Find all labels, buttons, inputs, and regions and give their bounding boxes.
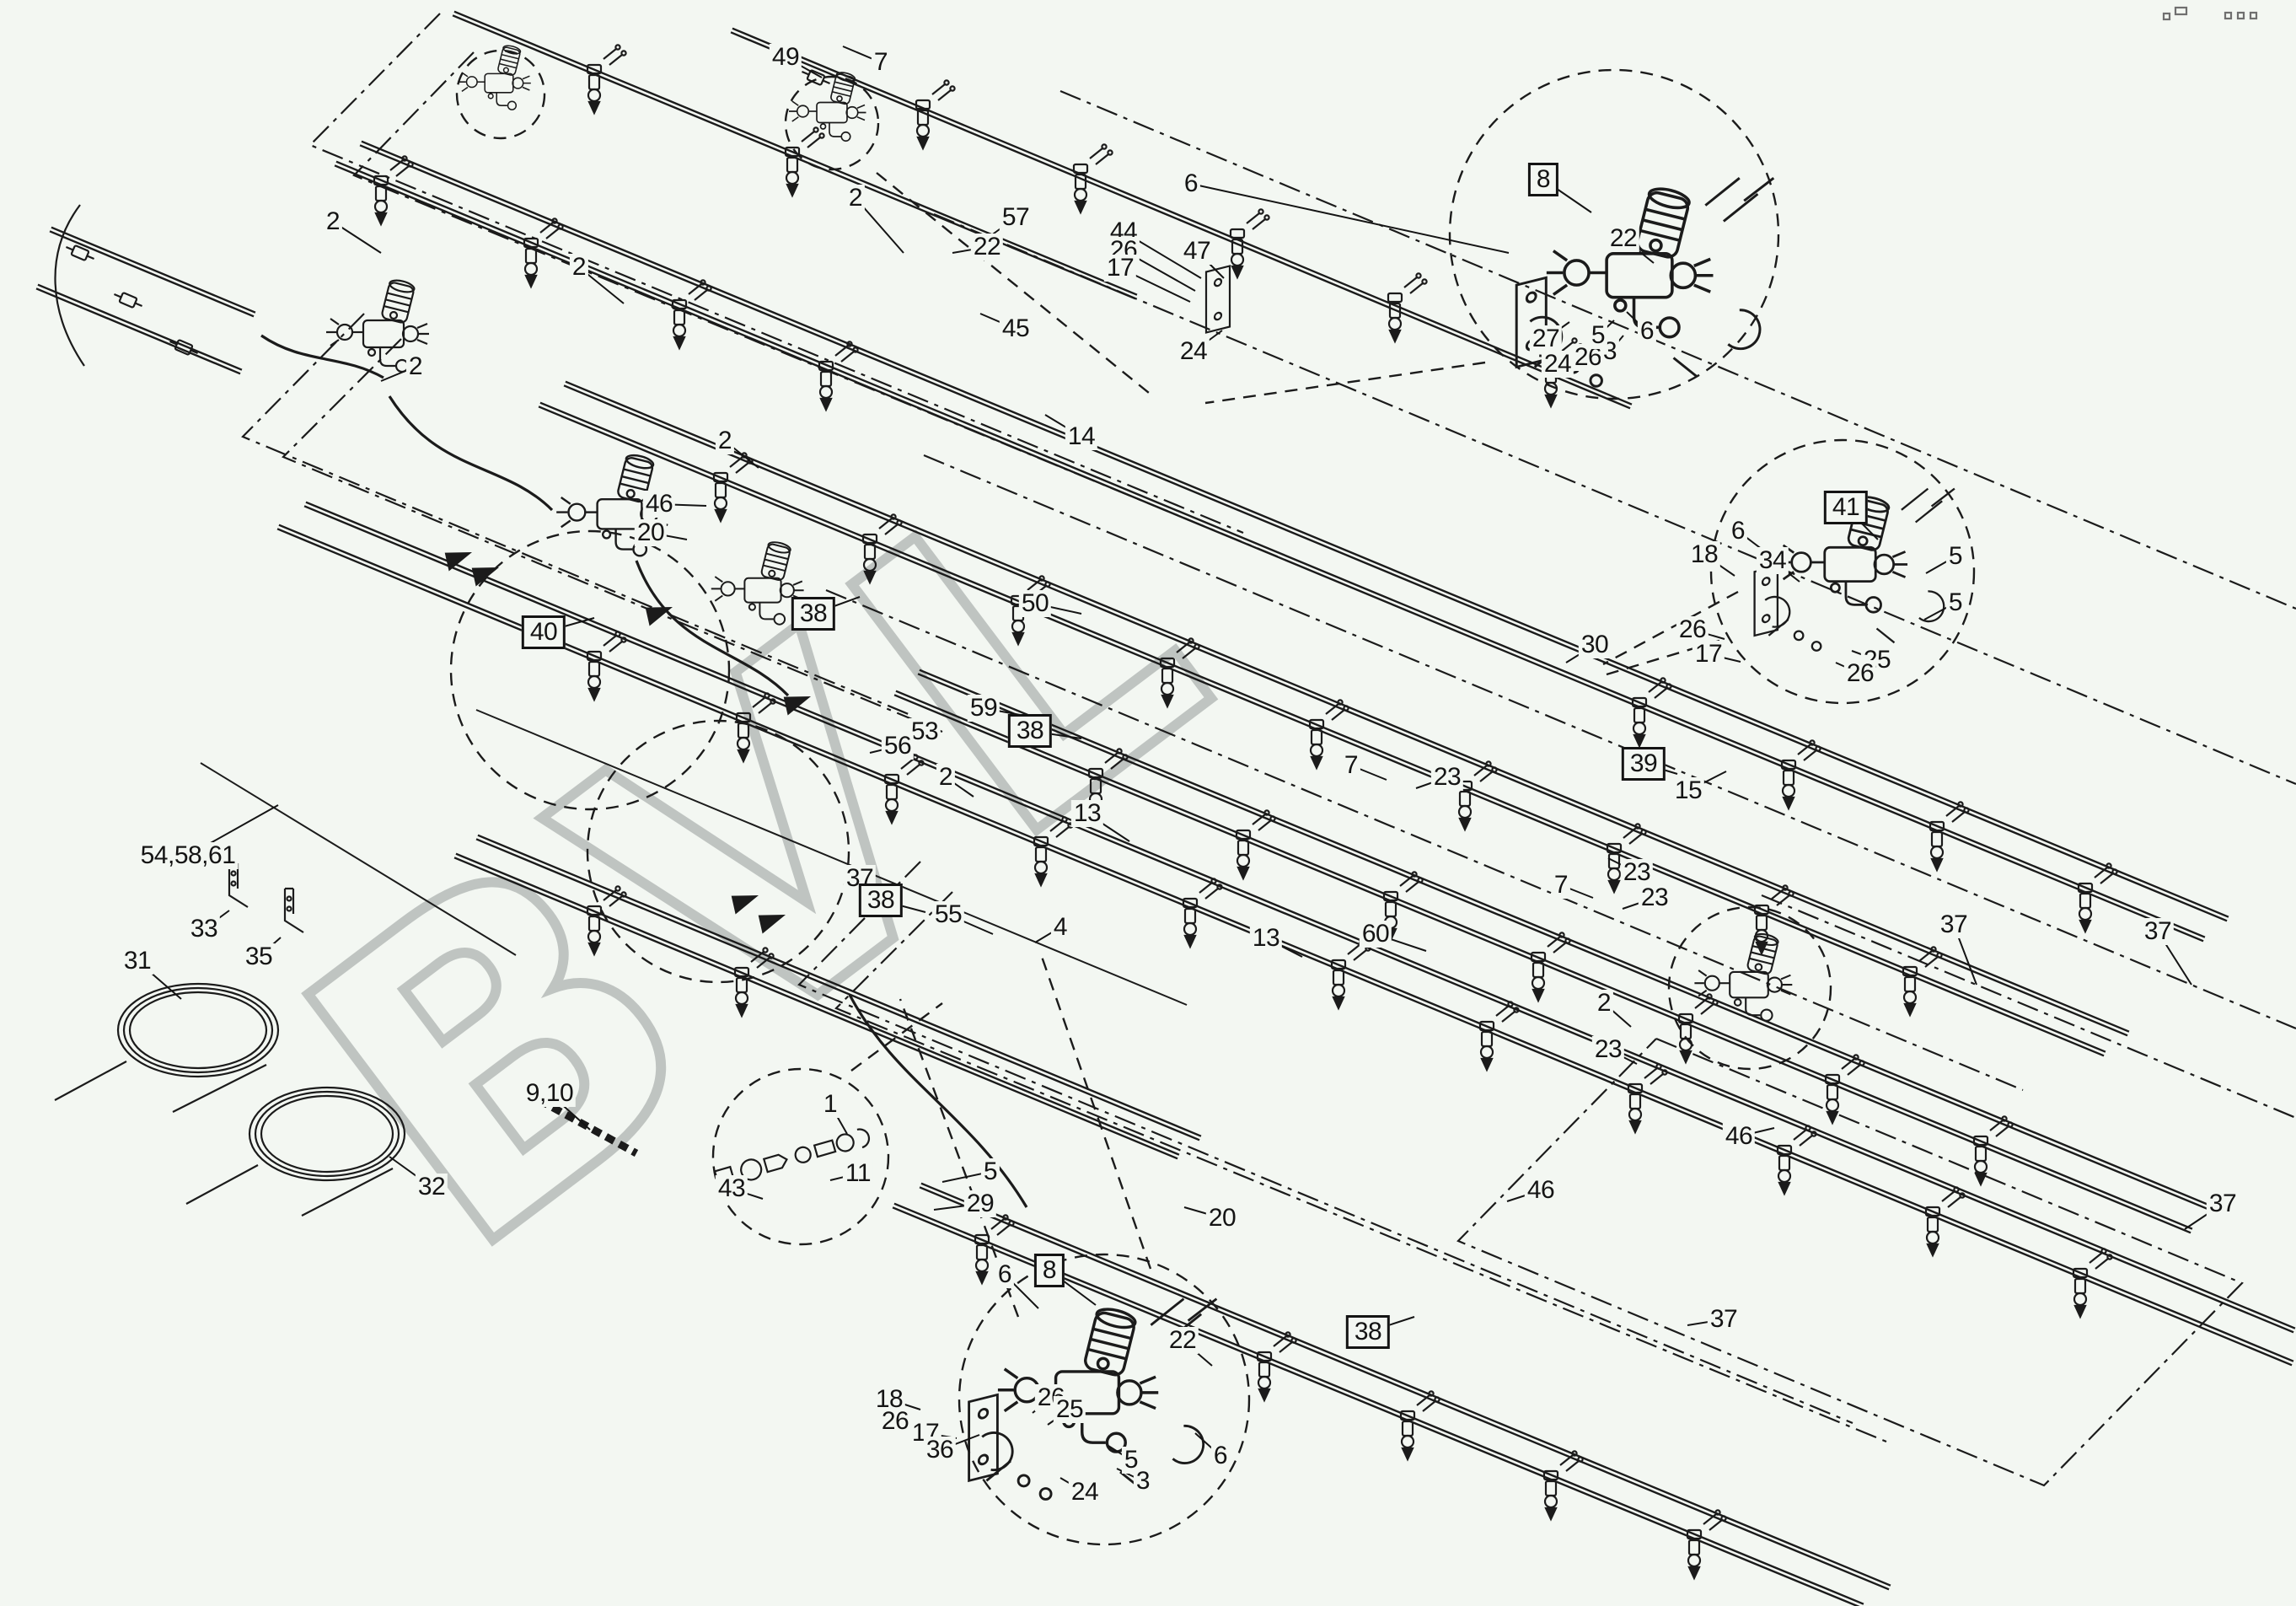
leader-line [1954, 925, 1977, 985]
detail-connector [1603, 592, 1738, 664]
leader-line [1709, 654, 1741, 662]
pipe [920, 1187, 1889, 1589]
tiny-squares-icon [2238, 13, 2244, 19]
leader-line [188, 805, 278, 856]
leader-line [1108, 1446, 1131, 1460]
valve-assembly [459, 44, 530, 110]
leader-line [1738, 531, 1766, 552]
leader-line [1184, 1207, 1222, 1218]
leader-line [544, 618, 594, 632]
leader-line [1604, 1003, 1631, 1027]
coiled-hose [186, 1088, 405, 1216]
leader-line [1183, 1340, 1212, 1366]
exploded-valve-assembly [969, 1299, 1217, 1500]
pipe [894, 1204, 1864, 1604]
leader-line [1124, 232, 1201, 278]
leader-line [1507, 1190, 1541, 1201]
leader-line [333, 222, 381, 253]
leader-line [830, 1174, 858, 1180]
leader-line [856, 198, 904, 253]
pipe [893, 1207, 1862, 1606]
pipe-clamp [64, 242, 96, 263]
leader-line [843, 46, 881, 62]
leader-line [1368, 1317, 1414, 1332]
tiny-squares-icon [2164, 13, 2170, 19]
page-corner-marks [2164, 8, 2256, 19]
valve-assembly [789, 71, 866, 141]
diagram-page: BVL 4972222246204054,58,61333531329,1057… [0, 0, 2296, 1606]
leader-line [830, 1104, 847, 1134]
leader-line [1561, 885, 1593, 898]
leader-line [889, 1399, 920, 1410]
leader-line [952, 247, 987, 253]
leader-line [980, 314, 1016, 329]
leader-line [1197, 251, 1224, 278]
pipe [50, 231, 254, 316]
tiny-squares-icon [2250, 13, 2256, 19]
leader-line [1627, 312, 1647, 331]
leader-line [2158, 932, 2191, 985]
nozzle-assembly [1388, 273, 1427, 341]
leader-line [984, 218, 1016, 240]
coiled-hose [55, 984, 278, 1112]
leader-line [1195, 1433, 1220, 1456]
nozzle-assembly [916, 80, 955, 148]
mounting-bracket [229, 863, 248, 907]
leader-line [1687, 1319, 1724, 1325]
pipe [36, 288, 240, 373]
detail-circle [1711, 440, 1974, 703]
leader-line [732, 1189, 763, 1199]
leader-line [1692, 630, 1725, 639]
bracket-plate [1206, 266, 1230, 333]
leader-line [895, 1421, 927, 1430]
leader-line [1124, 250, 1195, 291]
tiny-squares-icon [2225, 13, 2231, 19]
hose [389, 396, 552, 510]
valve-assembly [556, 453, 669, 556]
tiny-squares-icon [2175, 8, 2186, 14]
detail-connector [1041, 954, 1151, 1269]
pipe [38, 285, 242, 370]
detail-circle [959, 1254, 1249, 1544]
leader-line [1623, 898, 1655, 909]
exploded-valve-assembly [1516, 178, 1773, 386]
leader-line [1598, 320, 1614, 336]
leader-line [1588, 342, 1601, 357]
pipe [732, 29, 1632, 405]
detail-connector [1205, 363, 1485, 403]
leader-line [1704, 555, 1735, 576]
leader-line [1416, 777, 1447, 788]
leader-line [1376, 934, 1426, 951]
pipe [921, 1184, 1891, 1586]
leader-line [204, 910, 229, 929]
leader-line [1191, 184, 1509, 253]
leader-line [659, 504, 706, 506]
leader-line [651, 533, 687, 540]
leader-line [925, 1433, 957, 1438]
leader-line [1351, 765, 1387, 780]
leader-line [381, 367, 416, 381]
leader-line [1610, 336, 1623, 352]
leader-line [1926, 556, 1955, 573]
diagram-canvas: BVL [0, 0, 2296, 1606]
pipe-clamp [112, 289, 144, 310]
leader-line [1543, 180, 1591, 212]
valve-assembly [326, 278, 429, 372]
leader-line [942, 1172, 990, 1182]
boom-outline [1060, 91, 2296, 609]
leader-line [1836, 663, 1860, 674]
leader-line [1060, 1478, 1085, 1492]
leader-line [1194, 330, 1222, 352]
boom-end-curve [55, 205, 84, 366]
leader-line [1846, 508, 1878, 540]
direction-arrow [442, 543, 475, 572]
leader-line [1852, 651, 1877, 660]
pipe [51, 228, 255, 313]
